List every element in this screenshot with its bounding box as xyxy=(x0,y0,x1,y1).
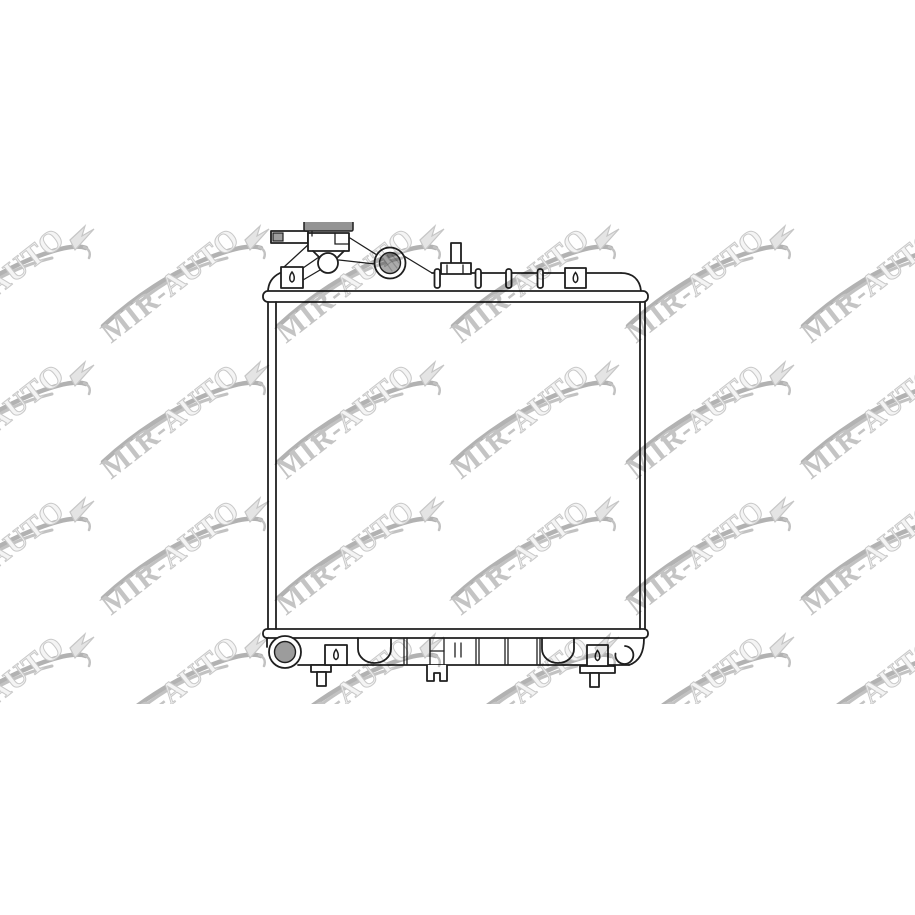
neck-joint xyxy=(318,253,338,273)
top-header-bar xyxy=(263,291,648,302)
outlet-pipe xyxy=(269,636,301,668)
inlet-pipe xyxy=(375,248,406,279)
tube-tip xyxy=(273,233,283,241)
overflow-tube xyxy=(271,231,308,243)
mounting-peg-left xyxy=(311,665,331,686)
mounting-bracket-bottom-right xyxy=(587,645,608,666)
mounting-bracket-top-left xyxy=(281,267,303,288)
center-mount-tab xyxy=(441,243,471,274)
drain-tab xyxy=(427,665,447,681)
mounting-peg-right xyxy=(580,666,615,687)
mounting-bracket-bottom-left xyxy=(325,645,347,665)
tank-u-cutout xyxy=(542,638,574,663)
radiator-core xyxy=(268,302,645,629)
product-image-band: MIR-AUTO MIR-AUTO MIR-AUTO MIR-AUTO MIR-… xyxy=(0,222,915,704)
mounting-bracket-top-right xyxy=(565,268,586,288)
tank-u-cutout xyxy=(358,638,391,663)
corner-hook xyxy=(615,646,633,664)
catalog-image-canvas: MIR-AUTO MIR-AUTO MIR-AUTO MIR-AUTO MIR-… xyxy=(0,0,915,915)
bottom-header-bar xyxy=(263,629,648,638)
radiator-line-drawing xyxy=(0,222,915,704)
